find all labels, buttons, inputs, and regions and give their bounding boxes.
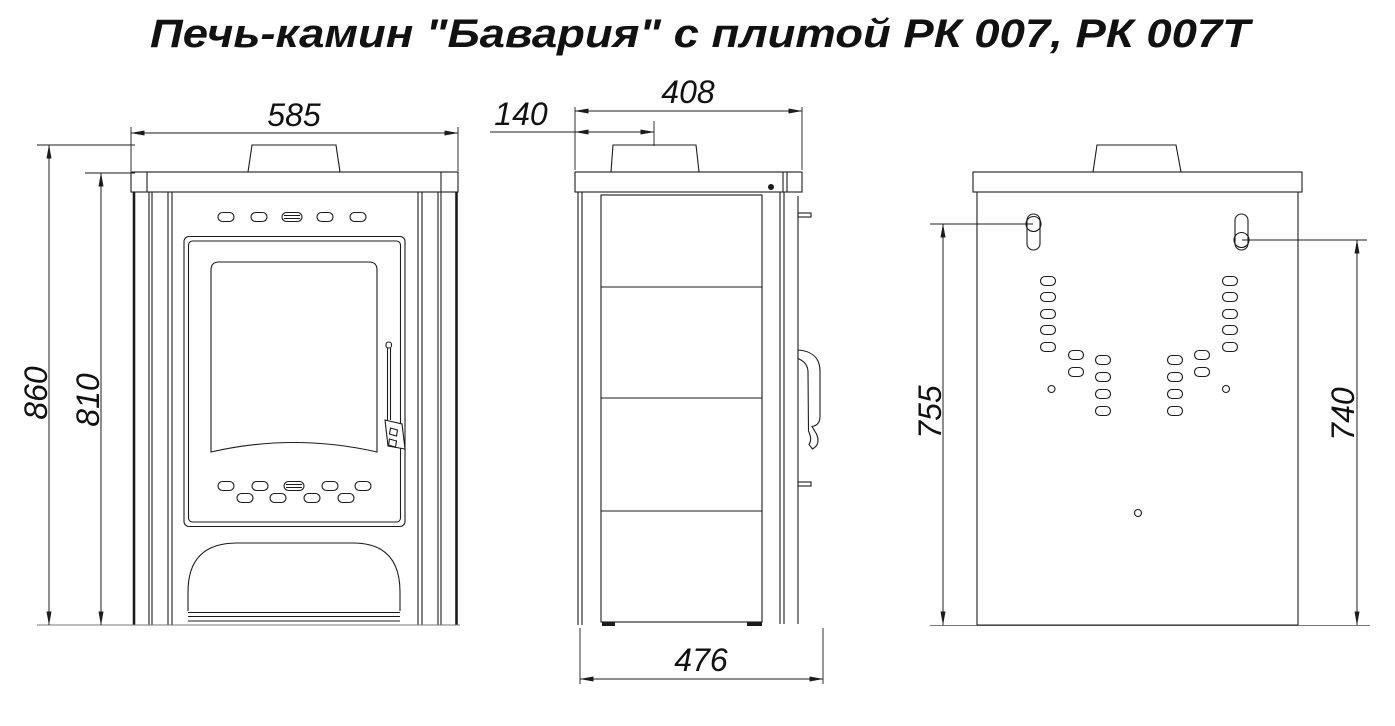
front-wood-niche	[188, 543, 400, 621]
front-lower-vents	[218, 482, 371, 503]
dimension-front-width: 585	[131, 97, 458, 171]
side-flue-collar	[611, 145, 699, 172]
dim-label-755: 755	[912, 385, 948, 439]
dim-label-860: 860	[18, 366, 54, 420]
back-vents-right	[1168, 277, 1238, 416]
side-foot-rear	[602, 622, 615, 626]
side-top-plate	[575, 172, 802, 192]
side-view	[575, 121, 820, 626]
plate-screw	[768, 184, 774, 190]
back-flue-collar	[1093, 145, 1181, 172]
lower-air-damper	[284, 482, 304, 491]
back-vents-left	[1041, 277, 1111, 416]
front-door	[184, 237, 405, 527]
dim-label-585: 585	[267, 97, 321, 133]
dim-label-140: 140	[494, 96, 548, 132]
front-flue-collar	[248, 145, 340, 172]
door-glass	[211, 262, 377, 452]
door-hinge-bottom	[798, 482, 811, 486]
front-upper-vents	[218, 213, 366, 222]
dimension-mount-right: 740	[1242, 240, 1367, 625]
front-top-plate	[131, 172, 458, 192]
mount-slot-right	[1234, 214, 1249, 250]
drawing-title: Печь-камин "Бавария" с плитой РК 007, РК…	[150, 12, 1254, 56]
dimension-depth-top: 408	[575, 74, 802, 170]
dimension-depth-total: 476	[580, 628, 823, 684]
side-panel	[601, 195, 762, 622]
dim-label-408: 408	[661, 74, 715, 110]
back-center-hole	[1135, 510, 1142, 517]
door-hinge-top	[798, 213, 811, 217]
dim-label-476: 476	[674, 642, 728, 678]
dim-label-810: 810	[70, 373, 106, 427]
mount-slot-left	[1026, 214, 1041, 250]
air-damper	[282, 213, 302, 222]
side-door-handle	[798, 350, 820, 449]
dimension-height-body: 810	[70, 173, 135, 625]
stove-drawing: Печь-камин "Бавария" с плитой РК 007, РК…	[0, 0, 1395, 726]
dimension-mount-left: 755	[912, 224, 1033, 625]
back-top-plate	[973, 172, 1302, 192]
dimension-flue-offset: 140	[490, 96, 654, 132]
technical-drawing-page: Печь-камин "Бавария" с плитой РК 007, РК…	[0, 0, 1395, 726]
back-view	[930, 145, 1370, 626]
dim-label-740: 740	[1325, 387, 1361, 441]
door-handle	[385, 342, 405, 449]
back-body	[977, 192, 1298, 625]
side-foot-front	[747, 622, 762, 626]
